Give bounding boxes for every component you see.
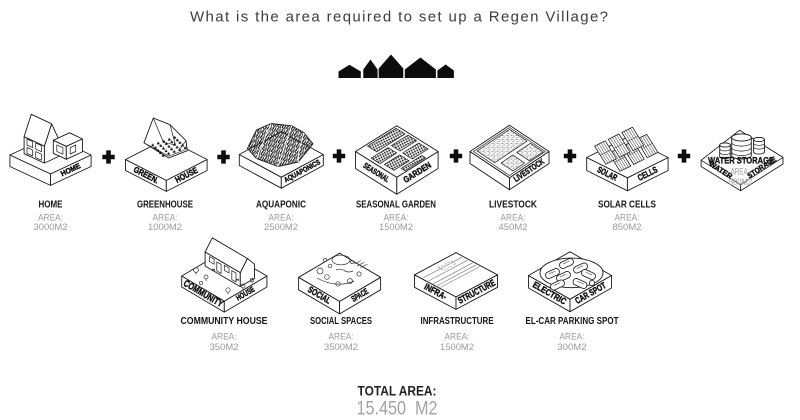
- svg-text:450M2: 450M2: [499, 222, 528, 232]
- svg-text:AQUAPONIC: AQUAPONIC: [256, 200, 306, 211]
- svg-text:SOLAR CELLS: SOLAR CELLS: [598, 200, 656, 211]
- svg-text:AREA:: AREA:: [212, 331, 237, 341]
- svg-text:AREA:: AREA:: [445, 331, 470, 341]
- svg-text:300M2: 300M2: [558, 342, 587, 352]
- svg-text:AREA:: AREA:: [38, 213, 63, 223]
- svg-text:AREA:: AREA:: [384, 213, 409, 223]
- svg-text:3500M2: 3500M2: [324, 342, 358, 352]
- svg-text:INFRASTRUCTURE: INFRASTRUCTURE: [421, 316, 494, 327]
- svg-text:AREA:: AREA:: [329, 331, 354, 341]
- svg-text:3000M2: 3000M2: [34, 222, 68, 232]
- svg-text:WATER STORAGE: WATER STORAGE: [708, 155, 774, 166]
- svg-text:SOCIAL SPACES: SOCIAL SPACES: [310, 316, 372, 327]
- svg-text:COMMUNITY HOUSE: COMMUNITY HOUSE: [181, 316, 268, 327]
- svg-text:1000M2: 1000M2: [148, 222, 182, 232]
- svg-text:500M2: 500M2: [729, 177, 752, 187]
- svg-text:15.450 M2: 15.450 M2: [357, 397, 438, 419]
- svg-text:1500M2: 1500M2: [379, 222, 413, 232]
- svg-text:SEASONAL GARDEN: SEASONAL GARDEN: [356, 200, 436, 211]
- svg-text:AREA:: AREA:: [153, 213, 178, 223]
- svg-text:AREA:: AREA:: [615, 213, 640, 223]
- svg-text:850M2: 850M2: [613, 222, 642, 232]
- svg-text:AREA:: AREA:: [731, 166, 750, 176]
- svg-text:AREA:: AREA:: [560, 331, 585, 341]
- svg-text:EL-CAR PARKING SPOT: EL-CAR PARKING SPOT: [526, 316, 620, 327]
- svg-text:GREENHOUSE: GREENHOUSE: [137, 200, 193, 211]
- svg-text:1500M2: 1500M2: [440, 342, 474, 352]
- svg-text:LIVESTOCK: LIVESTOCK: [489, 200, 537, 211]
- svg-text:2500M2: 2500M2: [264, 222, 298, 232]
- svg-text:What is the area required to s: What is the area required to set up a Re…: [190, 9, 608, 26]
- svg-text:AREA:: AREA:: [269, 213, 294, 223]
- svg-text:AREA:: AREA:: [501, 213, 526, 223]
- svg-text:HOME: HOME: [39, 200, 63, 211]
- svg-text:350M2: 350M2: [210, 342, 239, 352]
